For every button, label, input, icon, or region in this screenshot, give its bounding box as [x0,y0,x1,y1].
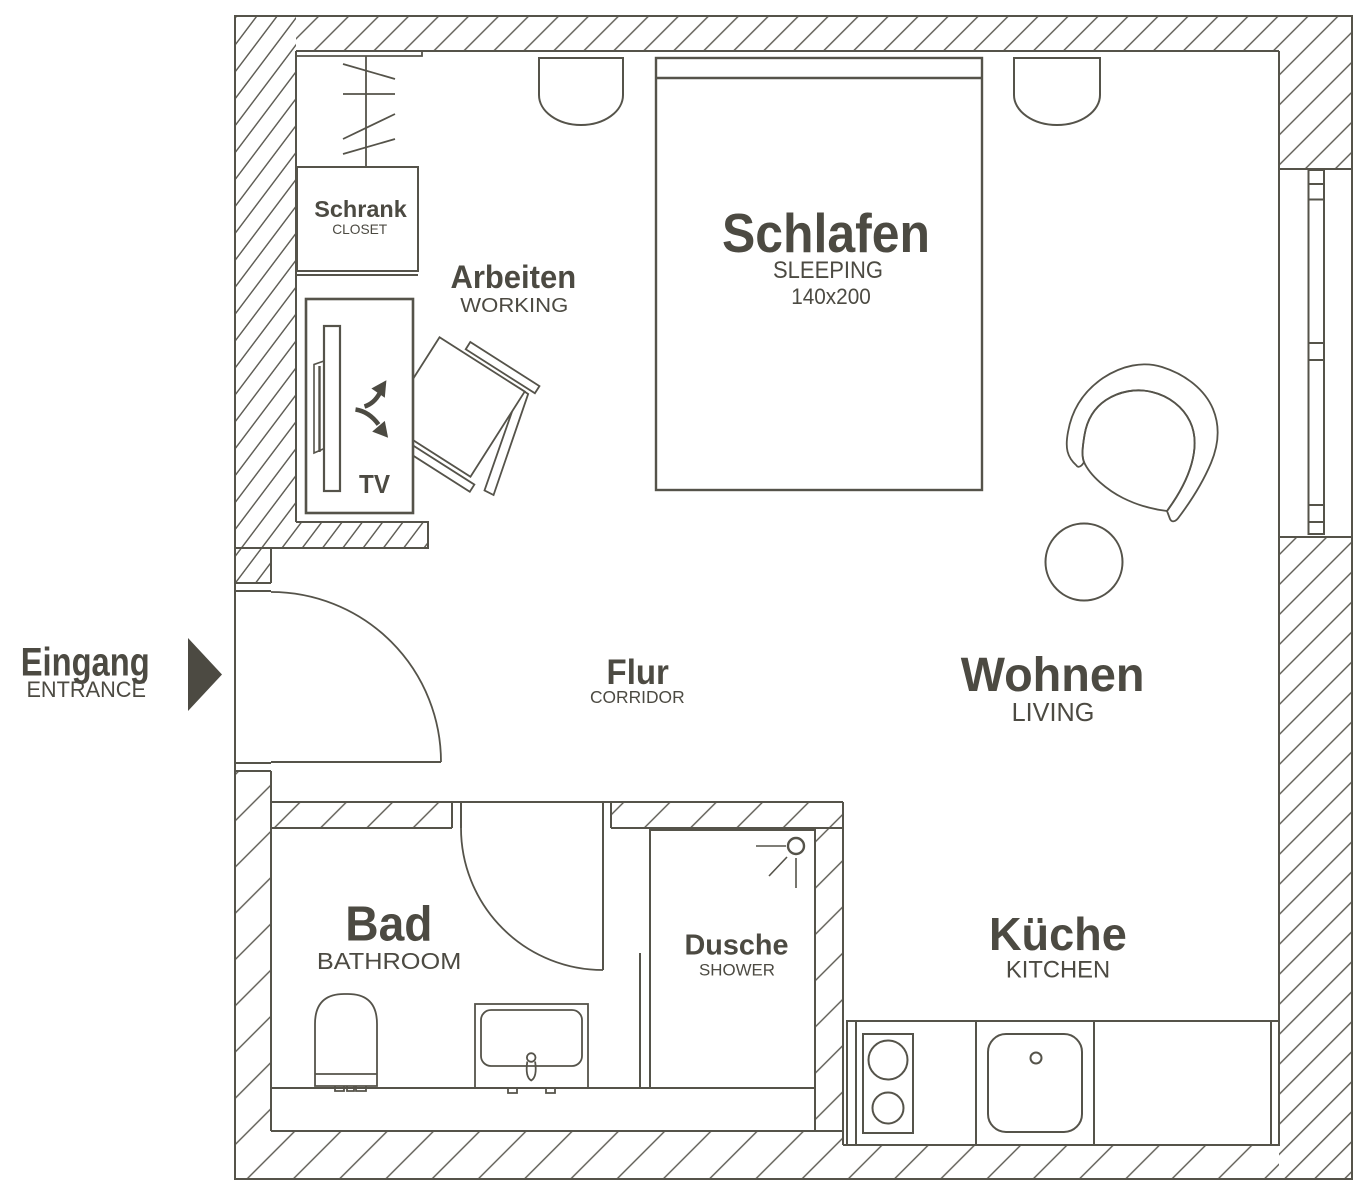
svg-text:140x200: 140x200 [791,284,871,309]
svg-text:Wohnen: Wohnen [961,649,1145,702]
svg-text:CLOSET: CLOSET [332,221,387,237]
svg-text:Bad: Bad [345,898,432,952]
svg-text:WORKING: WORKING [460,295,568,317]
svg-text:BATHROOM: BATHROOM [317,948,461,974]
svg-text:Arbeiten: Arbeiten [450,259,576,295]
svg-text:Schlafen: Schlafen [722,202,930,264]
svg-text:SHOWER: SHOWER [699,961,775,980]
svg-text:KITCHEN: KITCHEN [1006,957,1110,984]
svg-text:Küche: Küche [989,908,1127,960]
svg-text:ENTRANCE: ENTRANCE [26,677,146,702]
svg-text:Dusche: Dusche [685,930,789,962]
svg-text:Schrank: Schrank [314,196,407,222]
svg-text:TV: TV [359,469,391,499]
svg-text:SLEEPING: SLEEPING [773,257,883,284]
svg-text:LIVING: LIVING [1012,697,1095,727]
svg-text:CORRIDOR: CORRIDOR [590,687,685,707]
